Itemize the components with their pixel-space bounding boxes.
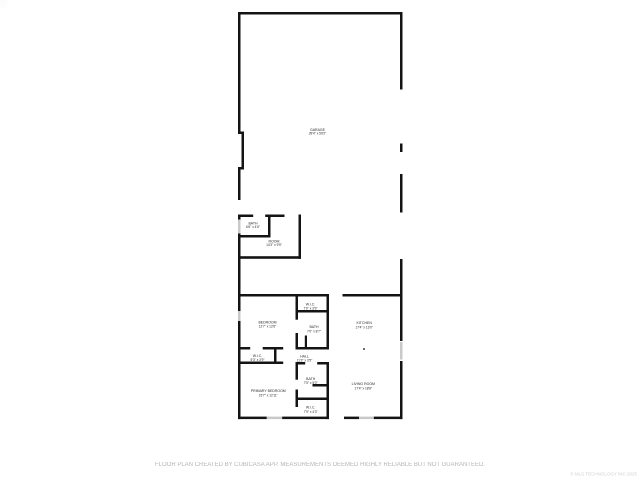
svg-text:39'4" x 59'2": 39'4" x 59'2" — [309, 132, 326, 136]
svg-text:7'0" x 3'9": 7'0" x 3'9" — [304, 306, 318, 310]
svg-text:KITCHEN: KITCHEN — [357, 321, 373, 325]
svg-text:5'3" x 3'9": 5'3" x 3'9" — [251, 358, 265, 362]
svg-text:PRIMARY BEDROOM: PRIMARY BEDROOM — [251, 389, 286, 393]
svg-text:© MLS TECHNOLOGY INC 2025: © MLS TECHNOLOGY INC 2025 — [570, 471, 637, 477]
svg-text:7'0" x 8'7": 7'0" x 8'7" — [307, 329, 321, 333]
svg-text:17'4" x 13'0": 17'4" x 13'0" — [355, 325, 372, 329]
svg-text:7'9" x 4'3": 7'9" x 4'3" — [304, 410, 318, 414]
svg-text:7'5" x 5'0": 7'5" x 5'0" — [304, 381, 318, 385]
svg-text:11'3" x 3'5": 11'3" x 3'5" — [297, 359, 312, 363]
svg-text:W.I.C.: W.I.C. — [306, 406, 316, 410]
svg-text:15'7" x 12'11": 15'7" x 12'11" — [259, 393, 278, 397]
svg-text:6'6" x 4'6": 6'6" x 4'6" — [246, 225, 260, 229]
svg-text:17'4" x 18'8": 17'4" x 18'8" — [355, 387, 372, 391]
svg-text:12'7" x 12'6": 12'7" x 12'6" — [259, 325, 276, 329]
svg-text:FLOOR PLAN CREATED BY CUBICASA: FLOOR PLAN CREATED BY CUBICASA APP. MEAS… — [155, 462, 485, 468]
svg-text:14'3" x 9'9": 14'3" x 9'9" — [266, 243, 282, 247]
svg-text:LIVING ROOM: LIVING ROOM — [352, 382, 375, 386]
